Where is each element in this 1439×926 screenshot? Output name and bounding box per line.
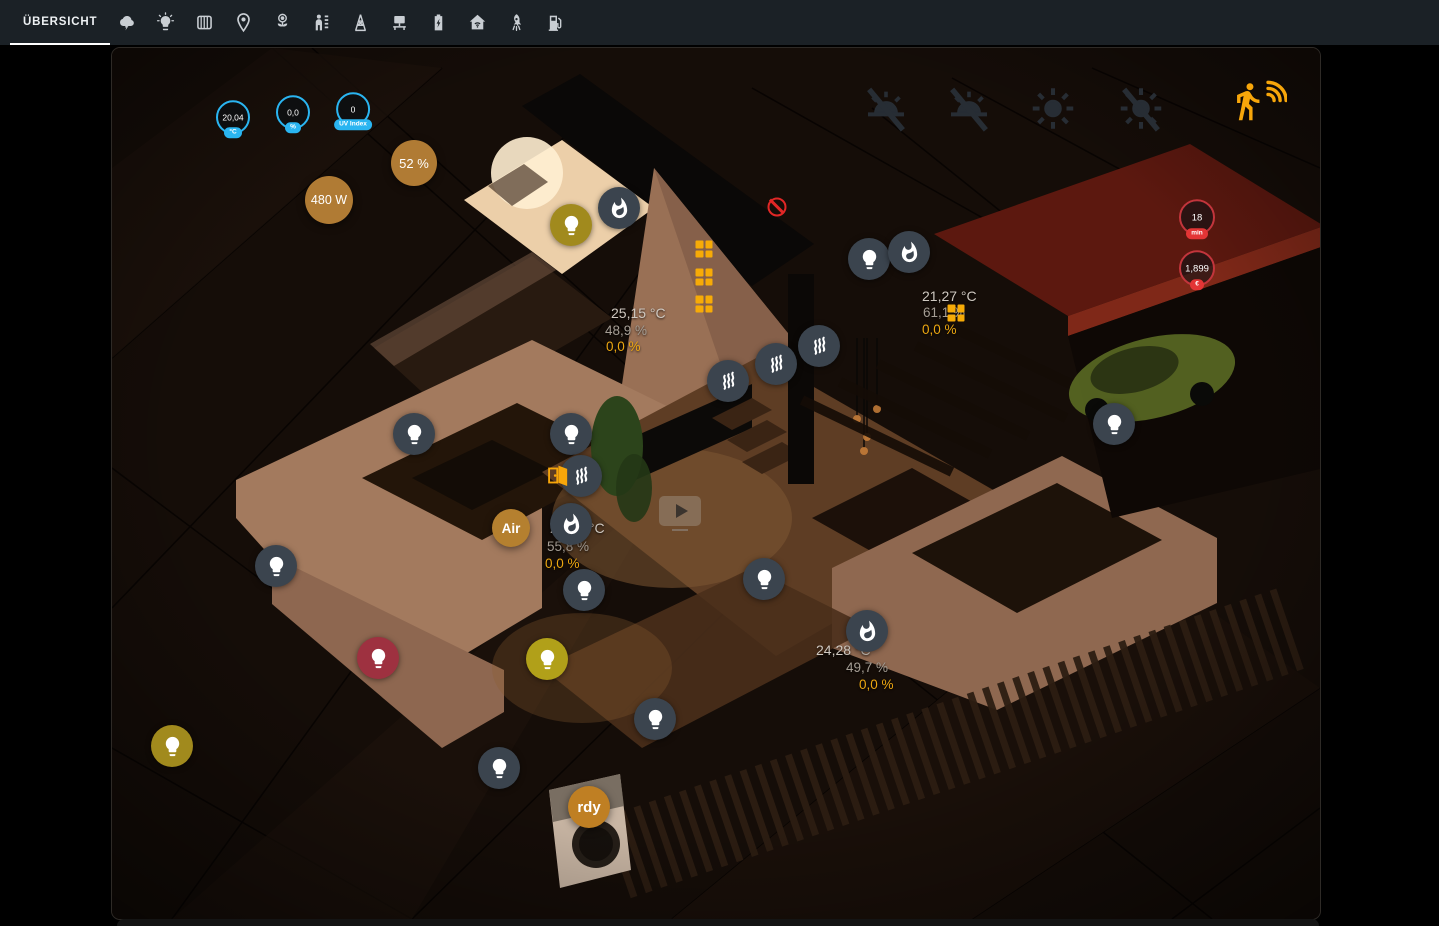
light-icon-terrace[interactable] <box>357 637 399 679</box>
floorplan-card: 20,04 °C 0,0 % 0 UV Index 52 % 480 W 18 … <box>111 47 1321 920</box>
power-watts-badge[interactable]: 480 W <box>305 176 353 224</box>
irrigation-icon[interactable] <box>231 11 255 35</box>
waves-icon-stairs-3[interactable] <box>798 325 840 367</box>
window-icon-bedroom[interactable] <box>948 305 965 322</box>
light-icon-porch[interactable] <box>478 747 520 789</box>
washer-status-badge[interactable]: rdy <box>568 786 610 828</box>
top-nav: ÜBERSICHT <box>0 0 1439 45</box>
heat-icon-living[interactable] <box>550 503 592 545</box>
car-charge-time-unit: min <box>1186 228 1208 239</box>
tab-uebersicht[interactable]: ÜBERSICHT <box>10 0 110 45</box>
air-purifier-badge[interactable]: Air <box>492 509 530 547</box>
outdoor-temperature-unit: °C <box>224 127 241 138</box>
lights-icon[interactable] <box>153 11 177 35</box>
climate-percent-bedroom[interactable]: 0,0 % <box>922 322 957 337</box>
window-icon-gable-1[interactable] <box>696 241 713 258</box>
light-icon-entry[interactable] <box>634 698 676 740</box>
solar-percent-badge[interactable]: 52 % <box>391 140 437 186</box>
car-charge-time-badge[interactable]: 18 min <box>1179 199 1215 239</box>
tab-label: ÜBERSICHT <box>23 16 97 28</box>
rocket-icon[interactable] <box>504 11 528 35</box>
weather-icon[interactable] <box>114 11 138 35</box>
floorplan-render <box>112 48 1320 919</box>
light-icon-hall[interactable] <box>550 413 592 455</box>
precipitation-unit: % <box>285 122 301 133</box>
light-icon-yard[interactable] <box>151 725 193 767</box>
light-icon-kitchen[interactable] <box>393 413 435 455</box>
ev-charger-icon[interactable] <box>543 11 567 35</box>
ghost-sunset-icon[interactable] <box>942 82 996 141</box>
light-icon-upstairs[interactable] <box>848 238 890 280</box>
workspace-icon[interactable] <box>387 11 411 35</box>
window-icon-gable-3[interactable] <box>696 296 713 313</box>
climate-temp-attic[interactable]: 25,15 °C <box>611 305 666 321</box>
plants-icon[interactable] <box>270 11 294 35</box>
climate-percent-dining[interactable]: 0,0 % <box>859 677 894 692</box>
ghost-sunrise-icon[interactable] <box>859 82 913 141</box>
power-grid-icon[interactable] <box>348 11 372 35</box>
light-icon-dining[interactable] <box>743 558 785 600</box>
heat-icon-upstairs[interactable] <box>888 231 930 273</box>
battery-icon[interactable] <box>426 11 450 35</box>
next-card-edge <box>117 919 1319 926</box>
ghost-sun-icon[interactable] <box>1026 82 1080 141</box>
light-icon-garage[interactable] <box>1093 403 1135 445</box>
motion-walker-icon[interactable] <box>1225 81 1287 138</box>
car-price-unit: € <box>1190 279 1204 290</box>
car-price-badge[interactable]: 1,899 € <box>1179 250 1215 290</box>
light-icon-lounge[interactable] <box>526 638 568 680</box>
waves-icon-stairs-1[interactable] <box>707 360 749 402</box>
no-entry-icon[interactable] <box>768 198 787 217</box>
nav-icon-row <box>114 0 567 45</box>
light-icon-living[interactable] <box>563 569 605 611</box>
ghost-sun-off-icon[interactable] <box>1114 82 1168 141</box>
outdoor-temperature-badge[interactable]: 20,04 °C <box>216 100 250 138</box>
presence-icon[interactable] <box>309 11 333 35</box>
climate-percent-attic[interactable]: 0,0 % <box>606 339 641 354</box>
light-icon-outside-left[interactable] <box>255 545 297 587</box>
heat-icon-bathroom[interactable] <box>598 187 640 229</box>
heating-icon[interactable] <box>192 11 216 35</box>
uv-unit: UV Index <box>334 119 372 130</box>
door-open-icon[interactable] <box>545 462 573 495</box>
climate-humidity-attic[interactable]: 48,9 % <box>605 323 647 338</box>
climate-humidity-dining[interactable]: 49,7 % <box>846 660 888 675</box>
heat-icon-dining[interactable] <box>846 610 888 652</box>
uv-index-badge[interactable]: 0 UV Index <box>334 92 372 130</box>
home-network-icon[interactable] <box>465 11 489 35</box>
climate-temp-bedroom[interactable]: 21,27 °C <box>922 288 977 304</box>
light-icon-bathroom[interactable] <box>550 204 592 246</box>
precipitation-badge[interactable]: 0,0 % <box>276 95 310 133</box>
window-icon-gable-2[interactable] <box>696 269 713 286</box>
climate-percent-living[interactable]: 0,0 % <box>545 556 580 571</box>
media-play-icon[interactable] <box>659 496 701 526</box>
waves-icon-stairs-2[interactable] <box>755 343 797 385</box>
